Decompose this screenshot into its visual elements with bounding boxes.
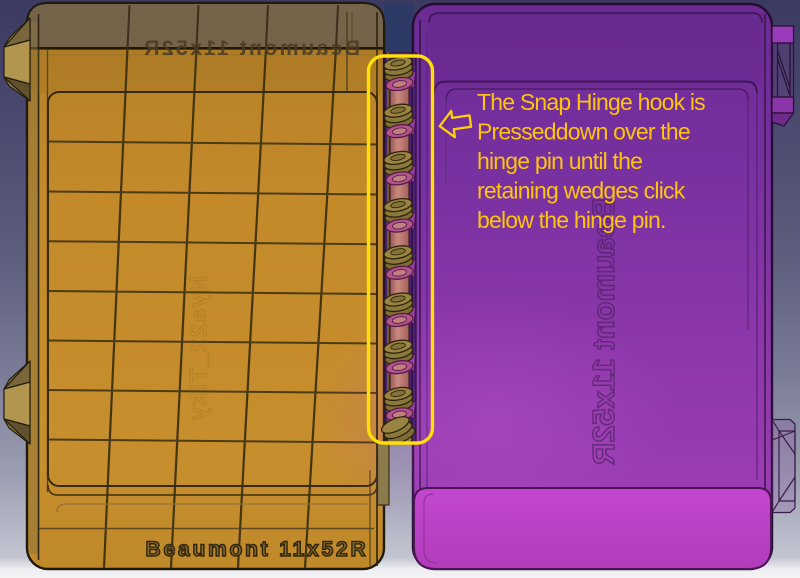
svg-text:The Snap Hinge hook is: The Snap Hinge hook is xyxy=(477,89,705,115)
svg-text:below the hinge pin.: below the hinge pin. xyxy=(477,207,666,233)
svg-text:Nya22_Tiky: Nya22_Tiky xyxy=(185,276,211,422)
svg-text:hinge pin until the: hinge pin until the xyxy=(477,148,642,174)
svg-text:Beaumont 11x52R: Beaumont 11x52R xyxy=(586,198,621,465)
svg-text:Beaumont 11x52R: Beaumont 11x52R xyxy=(142,36,360,60)
svg-text:retaining wedges click: retaining wedges click xyxy=(477,178,686,204)
svg-text:Beaumont 11x52R: Beaumont 11x52R xyxy=(146,538,369,561)
svg-text:Presseddown over the: Presseddown over the xyxy=(477,119,690,145)
